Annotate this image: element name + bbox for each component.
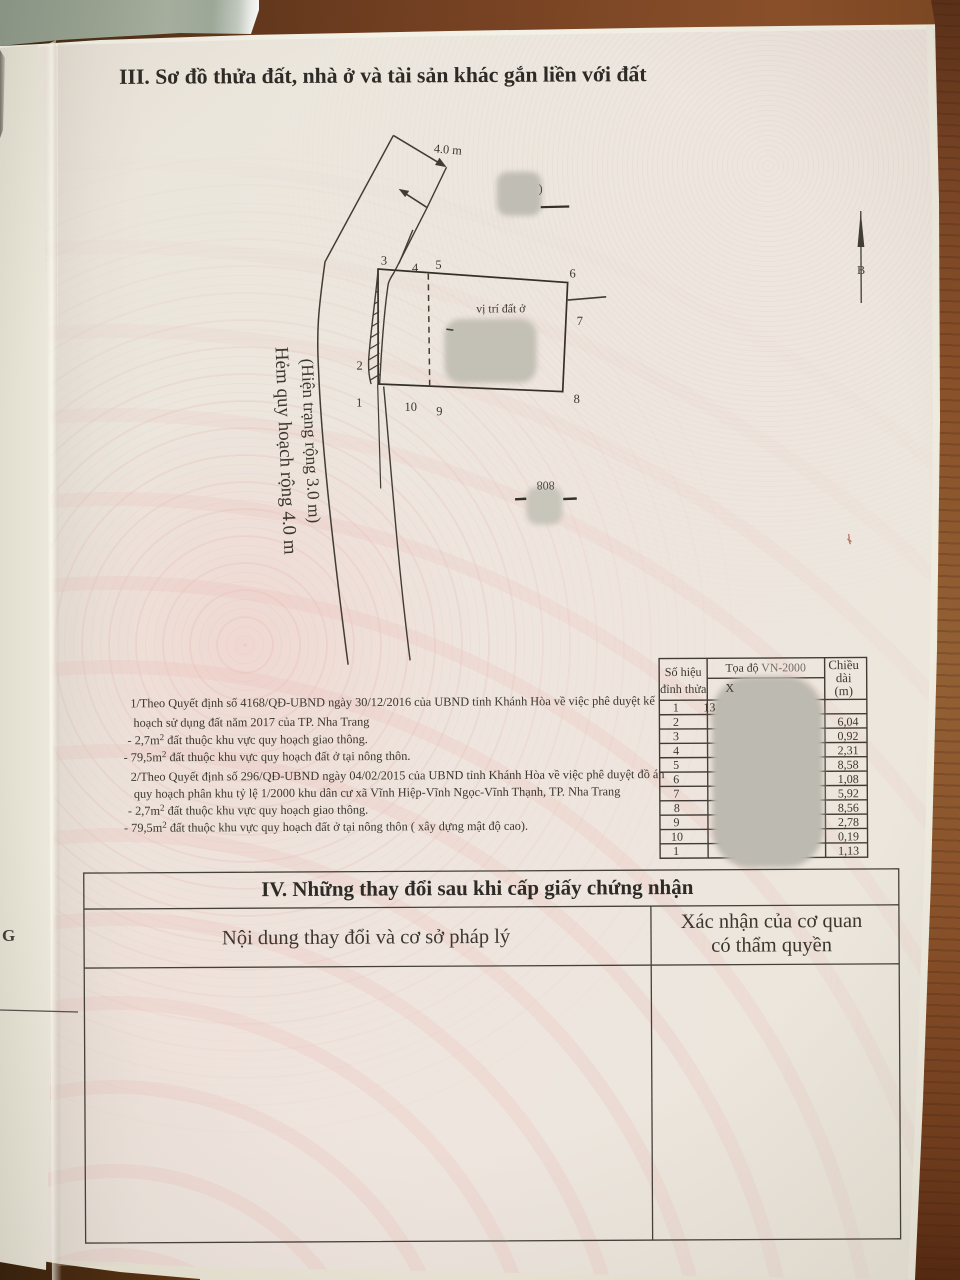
svg-text:X: X <box>725 681 734 695</box>
svg-text:quy hoạch phân khu tỷ lệ 1/200: quy hoạch phân khu tỷ lệ 1/2000 khu dân … <box>134 784 621 801</box>
svg-text:- 2,7m2 đất thuộc khu vực quy: - 2,7m2 đất thuộc khu vực quy hoạch giao… <box>127 731 367 747</box>
svg-text:10: 10 <box>671 830 683 844</box>
svg-text:6,04: 6,04 <box>837 715 858 729</box>
svg-text:2: 2 <box>356 359 362 373</box>
svg-text:8: 8 <box>574 392 580 406</box>
svg-text:Chiều: Chiều <box>828 658 859 672</box>
svg-text:2: 2 <box>673 715 679 729</box>
svg-text:dài: dài <box>836 671 852 685</box>
svg-text:3: 3 <box>673 729 679 743</box>
svg-text:2,31: 2,31 <box>838 743 859 757</box>
svg-text:III. Sơ đồ thửa đất, nhà ở và: III. Sơ đồ thửa đất, nhà ở và tài sản kh… <box>119 62 647 89</box>
svg-text:5: 5 <box>673 758 679 772</box>
svg-text:8,56: 8,56 <box>838 801 859 815</box>
svg-text:4: 4 <box>673 744 679 758</box>
svg-text:2/Theo Quyết định số 296/QĐ-UB: 2/Theo Quyết định số 296/QĐ-UBND ngày 04… <box>131 767 665 784</box>
svg-text:3: 3 <box>381 253 387 267</box>
svg-text:8,58: 8,58 <box>838 758 859 772</box>
svg-text:4.0 m: 4.0 m <box>433 141 462 157</box>
svg-text:Xác nhận của cơ quan: Xác nhận của cơ quan <box>681 910 863 933</box>
svg-text:- 79,5m2 đất thuộc khu vực quy: - 79,5m2 đất thuộc khu vực quy hoạch đất… <box>124 748 411 765</box>
svg-text:có thẩm quyền: có thẩm quyền <box>711 934 832 957</box>
svg-text:hoạch sử dụng đất năm 2017 của: hoạch sử dụng đất năm 2017 của TP. Nha T… <box>133 715 369 730</box>
svg-text:10: 10 <box>404 400 417 414</box>
svg-text:(m): (m) <box>834 684 853 698</box>
svg-text:9: 9 <box>673 815 679 829</box>
svg-text:1: 1 <box>673 844 679 858</box>
svg-text:6: 6 <box>569 266 575 280</box>
svg-text:2,78: 2,78 <box>838 815 859 829</box>
svg-text:808: 808 <box>537 479 555 493</box>
svg-text:Nội dung thay đổi và cơ sở phá: Nội dung thay đổi và cơ sở pháp lý <box>222 926 511 950</box>
svg-text:1,08: 1,08 <box>838 772 859 786</box>
svg-text:vị trí đất ở: vị trí đất ở <box>476 301 526 315</box>
svg-text:5: 5 <box>435 258 441 272</box>
svg-text:đỉnh thửa: đỉnh thửa <box>660 682 707 696</box>
svg-text:7: 7 <box>577 314 583 328</box>
svg-text:Hẻm quy hoạch rộng 4.0 m: Hẻm quy hoạch rộng 4.0 m <box>270 346 300 555</box>
svg-text:5,92: 5,92 <box>838 786 859 800</box>
svg-text:1: 1 <box>356 396 362 410</box>
svg-text:Tọa độ VN-2000: Tọa độ VN-2000 <box>725 660 806 674</box>
svg-text:Số hiệu: Số hiệu <box>665 665 702 679</box>
svg-text:4: 4 <box>412 261 419 275</box>
svg-text:9: 9 <box>436 404 442 418</box>
svg-text:G: G <box>2 926 15 945</box>
svg-text:1,13: 1,13 <box>838 844 859 858</box>
svg-text:- 79,5m2 đất thuộc khu vực quy: - 79,5m2 đất thuộc khu vực quy hoạch đất… <box>124 818 528 835</box>
svg-text:B: B <box>857 263 865 277</box>
svg-text:): ) <box>539 182 543 196</box>
svg-text:1: 1 <box>673 700 679 714</box>
svg-text:1/Theo Quyết định số 4168/QĐ-U: 1/Theo Quyết định số 4168/QĐ-UBND ngày 3… <box>130 694 655 711</box>
svg-text:13: 13 <box>703 700 715 714</box>
svg-text:(Hiện trạng rộng 3.0 m): (Hiện trạng rộng 3.0 m) <box>298 358 324 523</box>
svg-text:0,92: 0,92 <box>837 729 858 743</box>
svg-text:0,19: 0,19 <box>838 829 859 843</box>
svg-text:7: 7 <box>673 787 679 801</box>
svg-text:6: 6 <box>673 772 679 786</box>
svg-text:IV. Những thay đổi sau khi cấp: IV. Những thay đổi sau khi cấp giấy chứn… <box>261 875 694 901</box>
svg-text:- 2,7m2 đất thuộc khu vực quy: - 2,7m2 đất thuộc khu vực quy hoạch giao… <box>128 802 368 818</box>
svg-text:8: 8 <box>674 801 680 815</box>
